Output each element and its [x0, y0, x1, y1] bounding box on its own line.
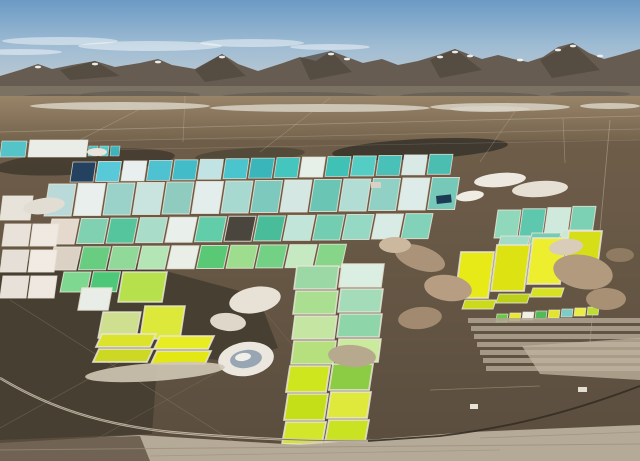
- pond-cell: [28, 276, 57, 298]
- small-structure: [470, 404, 478, 409]
- pond-cell: [162, 182, 194, 214]
- pond-cell: [327, 392, 371, 418]
- pond-cell: [79, 247, 111, 270]
- cloud-wisp: [290, 44, 370, 50]
- snow-cap: [467, 55, 473, 58]
- pond-cell: [192, 182, 224, 214]
- pond-cell: [280, 180, 312, 212]
- pond-cell: [339, 264, 384, 287]
- snow-cap: [452, 51, 458, 54]
- pond-cell: [223, 159, 249, 179]
- pond-cell: [226, 245, 258, 268]
- pond-cell: [325, 157, 351, 177]
- pond-cell: [496, 294, 530, 303]
- pond-cell: [286, 366, 330, 392]
- pond-cell: [491, 245, 530, 291]
- pond-cell: [284, 394, 328, 420]
- snow-cap: [219, 56, 225, 59]
- pond-cell: [535, 311, 547, 319]
- pond-cell: [339, 179, 371, 211]
- pond-cell: [274, 158, 300, 178]
- pond-cell: [154, 336, 214, 349]
- snow-cap: [570, 45, 576, 48]
- pond-cell: [256, 245, 288, 268]
- pond-cell: [106, 218, 138, 243]
- pond-cell: [110, 146, 120, 156]
- salar-streak: [580, 103, 640, 109]
- snow-cap: [155, 61, 161, 64]
- pond-cell: [0, 250, 29, 272]
- pond-cell: [138, 246, 170, 269]
- pond-cell: [337, 314, 382, 337]
- pond-cell: [165, 217, 197, 242]
- pond-cell: [294, 266, 339, 289]
- pond-cell: [70, 162, 96, 182]
- cloud-wisp: [200, 39, 304, 47]
- pond-cell: [372, 214, 404, 239]
- pond-cell: [77, 219, 109, 244]
- pond-cell: [574, 308, 586, 316]
- pond-cell: [2, 224, 31, 246]
- salt-mound: [87, 148, 107, 156]
- pond-cell: [494, 210, 521, 238]
- pond-cell: [74, 184, 106, 216]
- pond-cell: [30, 224, 59, 246]
- pond-cell: [329, 364, 373, 390]
- pond-cell: [224, 216, 256, 241]
- snow-cap: [517, 59, 523, 62]
- pond-cell: [310, 180, 342, 212]
- snow-cap: [437, 56, 443, 59]
- pond-cell: [249, 158, 275, 178]
- pond-cell: [172, 160, 198, 180]
- pond-cell: [28, 140, 88, 157]
- pond-cell: [300, 157, 326, 177]
- pond-cell: [338, 289, 383, 312]
- salt-mound: [586, 288, 626, 310]
- pond-cell: [313, 215, 345, 240]
- pond-cell: [0, 141, 27, 157]
- pond-cell: [108, 246, 140, 269]
- pond-cell: [167, 246, 199, 269]
- salt-mound: [379, 237, 411, 253]
- snow-cap: [328, 53, 334, 56]
- pond-cell: [530, 288, 564, 297]
- pond-cell: [96, 334, 156, 347]
- pond-group-bottom-yellow-quad: [93, 334, 214, 364]
- pond-cell: [283, 215, 315, 240]
- pond-cell: [342, 215, 374, 240]
- pond-cell: [376, 155, 402, 175]
- pond-cell: [93, 349, 153, 362]
- pond-cell: [428, 178, 460, 210]
- pond-cell: [136, 218, 168, 243]
- pond-cell: [548, 310, 560, 318]
- pond-cell: [221, 181, 253, 213]
- small-structure: [371, 182, 381, 188]
- snow-cap: [35, 66, 41, 69]
- pond-cell: [147, 160, 173, 180]
- pond-cell: [561, 309, 573, 317]
- pond-cell: [251, 181, 283, 213]
- salt-mound: [606, 248, 634, 262]
- pond-cell: [401, 214, 433, 239]
- snow-cap: [555, 49, 561, 52]
- pond-cell: [254, 216, 286, 241]
- pond-cell: [427, 154, 453, 174]
- pond-cell: [351, 156, 377, 176]
- pond-cell: [398, 178, 430, 210]
- pond-cell: [285, 245, 317, 268]
- pond-cell: [121, 161, 147, 181]
- aerial-photo-lithium-evaporation-ponds: [0, 0, 640, 461]
- pond-cell: [195, 217, 227, 242]
- pond-cell: [293, 291, 338, 314]
- pond-cell: [462, 300, 496, 309]
- cloud-wisp: [78, 41, 222, 51]
- pond-cell: [96, 161, 122, 181]
- pond-cell: [325, 420, 369, 442]
- small-structure: [436, 194, 452, 204]
- pond-cell: [133, 183, 165, 215]
- pond-cell: [118, 272, 167, 302]
- pond-cell: [0, 276, 29, 298]
- pond-cell: [28, 250, 57, 272]
- salar-streak: [210, 104, 430, 112]
- pond-cell: [292, 316, 337, 339]
- snow-cap: [92, 63, 98, 66]
- pond-cell: [198, 159, 224, 179]
- scene-svg: [0, 0, 640, 461]
- snow-cap: [344, 58, 350, 61]
- small-structure: [578, 387, 587, 392]
- pond-cell: [402, 155, 428, 175]
- pond-cell: [78, 288, 112, 310]
- salar-streak: [30, 102, 210, 110]
- snow-cap: [597, 55, 603, 58]
- pond-cell: [103, 183, 135, 215]
- pond-cell: [197, 246, 229, 269]
